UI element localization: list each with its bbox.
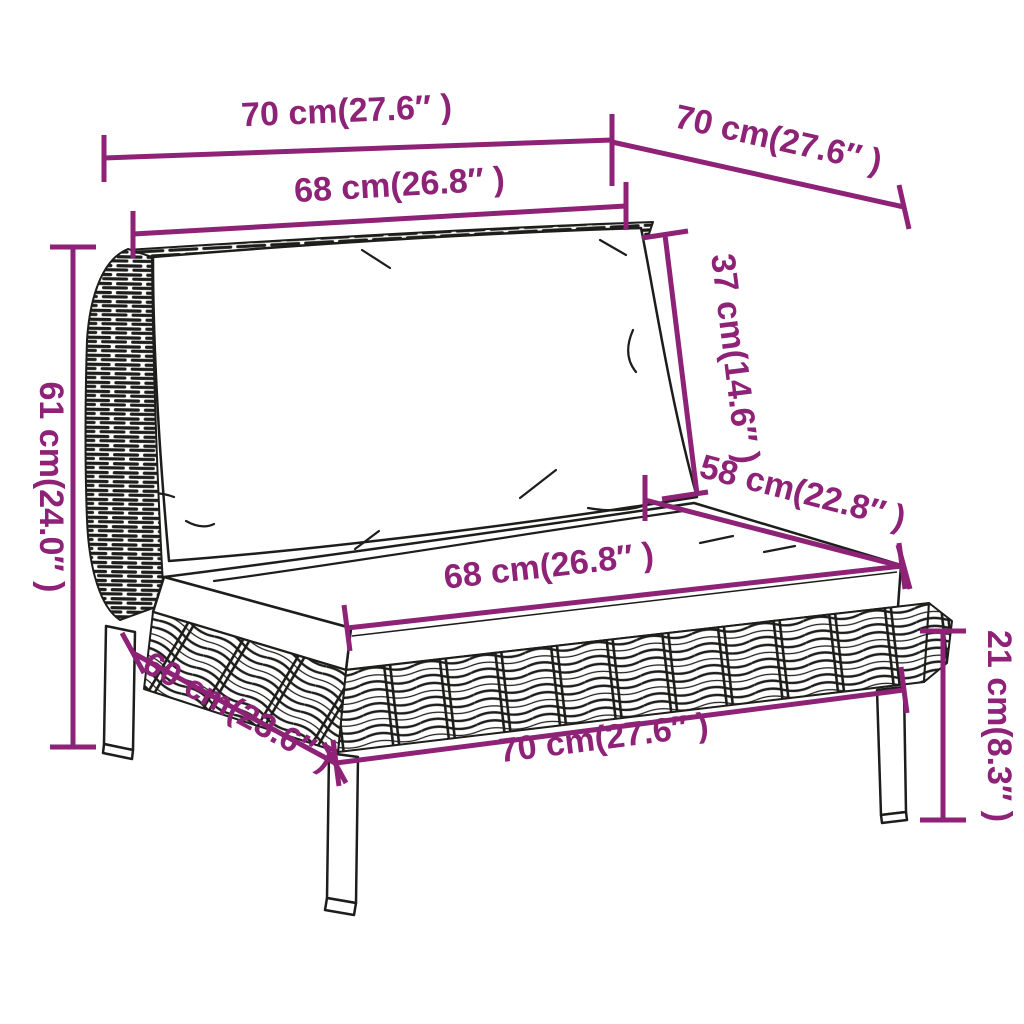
dimension-label: 70 cm(27.6″ ) xyxy=(671,98,885,181)
dimension-label: 37 cm(14.6″ ) xyxy=(703,252,766,466)
front-right-leg xyxy=(877,687,906,815)
backrest-side-weave-band xyxy=(86,249,165,620)
dimension-label: 68 cm(26.8″ ) xyxy=(293,160,506,210)
front-right-leg-foot xyxy=(881,812,907,823)
dim-overall-depth-top: 70 cm(27.6″ ) xyxy=(612,98,909,229)
dimension-label: 70 cm(27.6″ ) xyxy=(240,88,452,135)
base-right-weave-cap xyxy=(924,603,952,682)
dimension-label: 61 cm(24.0″ ) xyxy=(32,382,70,593)
dimension-diagram-canvas: 70 cm(27.6″ ) 70 cm(27.6″ ) 68 cm(26.8″ … xyxy=(0,0,1024,1024)
dimension-line xyxy=(104,140,612,158)
dimension-label: 21 cm(8.3″ ) xyxy=(980,630,1018,822)
sofa-dimension-diagram: 70 cm(27.6″ ) 70 cm(27.6″ ) 68 cm(26.8″ … xyxy=(0,0,1024,1024)
